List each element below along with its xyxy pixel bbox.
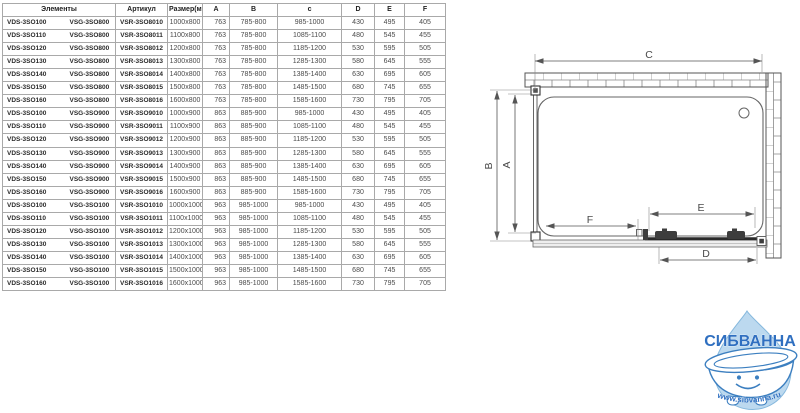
table-row: VDS-3SO130VSG-3SO800VSR-3SO80131300x8007… (3, 56, 446, 69)
table-row: VDS-3SO130VSG-3SO100VSR-3SO10131300x1000… (3, 238, 446, 251)
table-cell: 963 (203, 238, 230, 251)
table-cell: 885-900 (230, 147, 278, 160)
table-cell: VSR-3SO9011 (116, 121, 168, 134)
table-cell: VDS-3SO120 (3, 225, 61, 238)
table-cell: VSG-3SO800 (61, 56, 116, 69)
table-row: VDS-3SO130VSG-3SO900VSR-3SO90131300x9008… (3, 147, 446, 160)
table-cell: 645 (375, 56, 405, 69)
table-cell: 705 (405, 186, 446, 199)
table-cell: 555 (405, 238, 446, 251)
table-cell: 1000x1000 (168, 199, 203, 212)
sibvanna-logo: СИБВАННА www.sibvanna.ru (655, 298, 800, 413)
fixed-glass-panel (534, 92, 538, 241)
table-row: VDS-3SO110VSG-3SO900VSR-3SO90111100x9008… (3, 121, 446, 134)
table-cell: 985-1000 (230, 225, 278, 238)
wall-top (525, 73, 768, 87)
table-cell: 455 (405, 212, 446, 225)
table-cell: 885-900 (230, 134, 278, 147)
table-cell: 495 (375, 108, 405, 121)
table-cell: 1285-1300 (278, 147, 342, 160)
table-cell: 985-1000 (278, 17, 342, 30)
table-cell: 763 (203, 82, 230, 95)
bottom-track (533, 240, 767, 247)
table-cell: 985-1000 (230, 212, 278, 225)
table-cell: 763 (203, 95, 230, 108)
table-cell: VSG-3SO900 (61, 186, 116, 199)
table-cell: 455 (405, 30, 446, 43)
table-cell: 963 (203, 251, 230, 264)
table-cell: VSG-3SO900 (61, 108, 116, 121)
door-edge-bracket (643, 229, 648, 240)
table-cell: 963 (203, 199, 230, 212)
col-header-elements: Элементы (3, 4, 116, 17)
table-cell: 1485-1500 (278, 264, 342, 277)
table-cell: 1385-1400 (278, 251, 342, 264)
table-cell: 785-800 (230, 95, 278, 108)
table-cell: VSG-3SO800 (61, 30, 116, 43)
table-cell: 785-800 (230, 43, 278, 56)
table-cell: 863 (203, 108, 230, 121)
table-cell: VSG-3SO100 (61, 251, 116, 264)
spec-sheet-page: { "table": { "headers": { "elements": "Э… (0, 0, 800, 413)
table-cell: 480 (342, 30, 375, 43)
dimension-b-label: B (483, 162, 495, 169)
table-cell: 985-1000 (230, 277, 278, 290)
table-row: VDS-3SO110VSG-3SO100VSR-3SO10111100x1000… (3, 212, 446, 225)
dimension-e-label: E (697, 202, 704, 214)
table-cell: 680 (342, 173, 375, 186)
col-header-size: Размер(мм) (168, 4, 203, 17)
table-cell: 763 (203, 56, 230, 69)
table-cell: 430 (342, 199, 375, 212)
table-cell: VDS-3SO110 (3, 30, 61, 43)
table-row: VDS-3SO100VSG-3SO800VSR-3SO80101000x8007… (3, 17, 446, 30)
table-cell: 530 (342, 225, 375, 238)
table-cell: VDS-3SO130 (3, 56, 61, 69)
table-cell: VDS-3SO100 (3, 108, 61, 121)
drain-hole (739, 108, 749, 118)
dimension-c-label: C (645, 49, 653, 61)
col-header-a: A (203, 4, 230, 17)
table-cell: 1400x900 (168, 160, 203, 173)
table-cell: 1200x800 (168, 43, 203, 56)
table-cell: VDS-3SO130 (3, 238, 61, 251)
table-cell: 985-1000 (230, 199, 278, 212)
table-cell: 985-1000 (230, 238, 278, 251)
table-cell: 763 (203, 69, 230, 82)
table-cell: 1085-1100 (278, 30, 342, 43)
table-cell: VSR-3SO1010 (116, 199, 168, 212)
table-cell: 785-800 (230, 30, 278, 43)
table-cell: 985-1000 (278, 108, 342, 121)
table-cell: 645 (375, 147, 405, 160)
dimension-a-label: A (501, 161, 513, 168)
wall-right (766, 73, 781, 258)
shower-tray (538, 97, 763, 236)
brand-name: СИБВАННА (704, 333, 796, 350)
table-cell: VSG-3SO100 (61, 238, 116, 251)
table-cell: 1485-1500 (278, 82, 342, 95)
table-cell: 630 (342, 69, 375, 82)
table-cell: 495 (375, 199, 405, 212)
table-cell: VSR-3SO1011 (116, 212, 168, 225)
table-cell: 655 (405, 82, 446, 95)
table-cell: VSG-3SO800 (61, 69, 116, 82)
table-cell: VDS-3SO150 (3, 264, 61, 277)
wall-profile-top (531, 86, 540, 95)
table-row: VDS-3SO150VSG-3SO900VSR-3SO90151500x9008… (3, 173, 446, 186)
table-cell: 795 (375, 95, 405, 108)
table-cell: VDS-3SO120 (3, 134, 61, 147)
table-row: VDS-3SO160VSG-3SO800VSR-3SO80161600x8007… (3, 95, 446, 108)
table-cell: VSG-3SO100 (61, 199, 116, 212)
table-cell: 580 (342, 147, 375, 160)
col-header-article: Артикул (116, 4, 168, 17)
table-cell: 730 (342, 186, 375, 199)
table-cell: VSG-3SO900 (61, 160, 116, 173)
table-row: VDS-3SO150VSG-3SO100VSR-3SO10151500x1000… (3, 264, 446, 277)
table-cell: VSR-3SO8016 (116, 95, 168, 108)
table-cell: 1400x1000 (168, 251, 203, 264)
table-cell: VSR-3SO8014 (116, 69, 168, 82)
table-cell: VSR-3SO1012 (116, 225, 168, 238)
table-cell: 885-900 (230, 121, 278, 134)
table-cell: 695 (375, 69, 405, 82)
table-cell: 863 (203, 147, 230, 160)
table-cell: 1285-1300 (278, 238, 342, 251)
table-cell: 430 (342, 108, 375, 121)
table-cell: VDS-3SO160 (3, 277, 61, 290)
table-cell: 680 (342, 264, 375, 277)
table-cell: 1100x800 (168, 30, 203, 43)
table-cell: 1185-1200 (278, 225, 342, 238)
table-cell: 580 (342, 238, 375, 251)
dimension-d-label: D (702, 248, 710, 260)
table-cell: 763 (203, 17, 230, 30)
table-cell: 680 (342, 82, 375, 95)
table-row: VDS-3SO150VSG-3SO800VSR-3SO80151500x8007… (3, 82, 446, 95)
table-cell: 495 (375, 17, 405, 30)
table-cell: 545 (375, 212, 405, 225)
table-row: VDS-3SO120VSG-3SO800VSR-3SO80121200x8007… (3, 43, 446, 56)
table-cell: 1200x900 (168, 134, 203, 147)
table-cell: 1000x900 (168, 108, 203, 121)
table-cell: VSG-3SO100 (61, 225, 116, 238)
table-cell: 405 (405, 199, 446, 212)
dimension-f-label: F (587, 214, 593, 226)
table-cell: 430 (342, 17, 375, 30)
table-row: VDS-3SO100VSG-3SO900VSR-3SO90101000x9008… (3, 108, 446, 121)
table-cell: 605 (405, 69, 446, 82)
col-header-b: B (230, 4, 278, 17)
table-cell: 530 (342, 43, 375, 56)
table-cell: VSG-3SO900 (61, 147, 116, 160)
door-handle (637, 230, 643, 237)
table-cell: 863 (203, 134, 230, 147)
table-cell: 730 (342, 277, 375, 290)
table-cell: 455 (405, 121, 446, 134)
table-cell: 785-800 (230, 69, 278, 82)
shower-enclosure-diagram: C B A F E D (470, 40, 800, 275)
table-cell: 863 (203, 173, 230, 186)
table-cell: VSR-3SO9014 (116, 160, 168, 173)
table-cell: 595 (375, 43, 405, 56)
table-cell: 795 (375, 186, 405, 199)
table-cell: VSG-3SO900 (61, 134, 116, 147)
table-cell: 963 (203, 225, 230, 238)
table-cell: 1500x800 (168, 82, 203, 95)
table-cell: 795 (375, 277, 405, 290)
table-row: VDS-3SO120VSG-3SO100VSR-3SO10121200x1000… (3, 225, 446, 238)
table-cell: VSG-3SO800 (61, 95, 116, 108)
table-cell: VDS-3SO150 (3, 82, 61, 95)
table-cell: 695 (375, 251, 405, 264)
col-header-f: F (405, 4, 446, 17)
table-cell: 1085-1100 (278, 212, 342, 225)
table-cell: VDS-3SO160 (3, 95, 61, 108)
table-cell: 1100x1000 (168, 212, 203, 225)
table-cell: 885-900 (230, 186, 278, 199)
col-header-c: c (278, 4, 342, 17)
table-cell: 863 (203, 121, 230, 134)
table-cell: VSR-3SO9015 (116, 173, 168, 186)
table-cell: VSG-3SO900 (61, 121, 116, 134)
table-cell: 730 (342, 95, 375, 108)
table-cell: 1600x900 (168, 186, 203, 199)
table-row: VDS-3SO140VSG-3SO100VSR-3SO10141400x1000… (3, 251, 446, 264)
table-cell: VSR-3SO1016 (116, 277, 168, 290)
table-cell: VDS-3SO160 (3, 186, 61, 199)
table-cell: 555 (405, 147, 446, 160)
table-cell: VSG-3SO100 (61, 212, 116, 225)
table-cell: 1300x800 (168, 56, 203, 69)
table-cell: 1085-1100 (278, 121, 342, 134)
col-header-d: D (342, 4, 375, 17)
table-cell: 1300x900 (168, 147, 203, 160)
table-cell: VSG-3SO800 (61, 17, 116, 30)
table-cell: 885-900 (230, 108, 278, 121)
table-cell: VSR-3SO9012 (116, 134, 168, 147)
table-cell: 630 (342, 251, 375, 264)
table-cell: 505 (405, 134, 446, 147)
table-cell: VSR-3SO1014 (116, 251, 168, 264)
table-cell: 505 (405, 225, 446, 238)
spec-table-body: VDS-3SO100VSG-3SO800VSR-3SO80101000x8007… (3, 17, 446, 291)
table-cell: 1600x800 (168, 95, 203, 108)
table-cell: 655 (405, 264, 446, 277)
table-cell: 985-1000 (230, 264, 278, 277)
table-cell: 1185-1200 (278, 134, 342, 147)
table-cell: 785-800 (230, 82, 278, 95)
table-cell: VDS-3SO130 (3, 147, 61, 160)
table-cell: VSR-3SO8012 (116, 43, 168, 56)
table-row: VDS-3SO140VSG-3SO900VSR-3SO90141400x9008… (3, 160, 446, 173)
table-cell: VSG-3SO900 (61, 173, 116, 186)
table-cell: 555 (405, 56, 446, 69)
table-cell: 985-1000 (230, 251, 278, 264)
table-cell: VSG-3SO100 (61, 264, 116, 277)
door-roller-right (727, 231, 745, 239)
table-cell: 1285-1300 (278, 56, 342, 69)
table-row: VDS-3SO120VSG-3SO900VSR-3SO90121200x9008… (3, 134, 446, 147)
spec-table: Элементы Артикул Размер(мм) A B c D E F … (2, 3, 446, 291)
table-cell: VDS-3SO120 (3, 43, 61, 56)
table-cell: 705 (405, 95, 446, 108)
table-cell: 863 (203, 186, 230, 199)
table-cell: 963 (203, 212, 230, 225)
table-cell: 1385-1400 (278, 69, 342, 82)
table-cell: VSR-3SO8010 (116, 17, 168, 30)
table-cell: 1585-1600 (278, 95, 342, 108)
table-cell: VSR-3SO8015 (116, 82, 168, 95)
table-cell: VSR-3SO1015 (116, 264, 168, 277)
table-cell: VDS-3SO140 (3, 251, 61, 264)
table-cell: 885-900 (230, 160, 278, 173)
table-cell: 1500x1000 (168, 264, 203, 277)
table-cell: 745 (375, 173, 405, 186)
table-cell: VSG-3SO800 (61, 43, 116, 56)
table-cell: 963 (203, 264, 230, 277)
table-cell: 1300x1000 (168, 238, 203, 251)
table-cell: VSR-3SO9016 (116, 186, 168, 199)
table-cell: 480 (342, 121, 375, 134)
table-cell: 405 (405, 17, 446, 30)
table-cell: VSR-3SO9010 (116, 108, 168, 121)
table-cell: 1385-1400 (278, 160, 342, 173)
table-cell: 655 (405, 173, 446, 186)
table-cell: VSR-3SO9013 (116, 147, 168, 160)
table-cell: VSR-3SO1013 (116, 238, 168, 251)
table-cell: VDS-3SO100 (3, 199, 61, 212)
table-cell: 605 (405, 251, 446, 264)
table-cell: 763 (203, 30, 230, 43)
table-cell: 1500x900 (168, 173, 203, 186)
table-row: VDS-3SO160VSG-3SO900VSR-3SO90161600x9008… (3, 186, 446, 199)
table-cell: VSG-3SO100 (61, 277, 116, 290)
table-cell: VDS-3SO100 (3, 17, 61, 30)
table-cell: 545 (375, 121, 405, 134)
table-cell: 1600x1000 (168, 277, 203, 290)
table-row: VDS-3SO110VSG-3SO800VSR-3SO80111100x8007… (3, 30, 446, 43)
table-cell: 545 (375, 30, 405, 43)
table-cell: 785-800 (230, 17, 278, 30)
table-cell: 963 (203, 277, 230, 290)
table-cell: 705 (405, 277, 446, 290)
table-cell: VSR-3SO8011 (116, 30, 168, 43)
table-cell: 480 (342, 212, 375, 225)
table-cell: 1100x900 (168, 121, 203, 134)
table-cell: VDS-3SO110 (3, 212, 61, 225)
table-cell: 785-800 (230, 56, 278, 69)
table-row: VDS-3SO100VSG-3SO100VSR-3SO10101000x1000… (3, 199, 446, 212)
table-cell: 1000x800 (168, 17, 203, 30)
table-cell: 745 (375, 264, 405, 277)
table-cell: 595 (375, 225, 405, 238)
table-cell: 595 (375, 134, 405, 147)
table-cell: 630 (342, 160, 375, 173)
table-header-row: Элементы Артикул Размер(мм) A B c D E F (3, 4, 446, 17)
table-cell: 1585-1600 (278, 277, 342, 290)
table-cell: VDS-3SO110 (3, 121, 61, 134)
table-cell: VDS-3SO140 (3, 69, 61, 82)
table-cell: 645 (375, 238, 405, 251)
table-cell: 605 (405, 160, 446, 173)
door-roller-left (655, 231, 677, 239)
table-cell: 1200x1000 (168, 225, 203, 238)
table-cell: VDS-3SO140 (3, 160, 61, 173)
table-cell: 580 (342, 56, 375, 69)
table-cell: 1400x800 (168, 69, 203, 82)
table-cell: 695 (375, 160, 405, 173)
table-cell: 1185-1200 (278, 43, 342, 56)
table-cell: 745 (375, 82, 405, 95)
table-cell: 530 (342, 134, 375, 147)
table-cell: 885-900 (230, 173, 278, 186)
table-cell: VSR-3SO8013 (116, 56, 168, 69)
table-cell: VDS-3SO150 (3, 173, 61, 186)
col-header-e: E (375, 4, 405, 17)
table-cell: 505 (405, 43, 446, 56)
table-cell: 863 (203, 160, 230, 173)
table-cell: 405 (405, 108, 446, 121)
table-cell: VSG-3SO800 (61, 82, 116, 95)
table-cell: 1585-1600 (278, 186, 342, 199)
table-cell: 763 (203, 43, 230, 56)
table-row: VDS-3SO140VSG-3SO800VSR-3SO80141400x8007… (3, 69, 446, 82)
table-cell: 985-1000 (278, 199, 342, 212)
table-cell: 1485-1500 (278, 173, 342, 186)
table-row: VDS-3SO160VSG-3SO100VSR-3SO10161600x1000… (3, 277, 446, 290)
